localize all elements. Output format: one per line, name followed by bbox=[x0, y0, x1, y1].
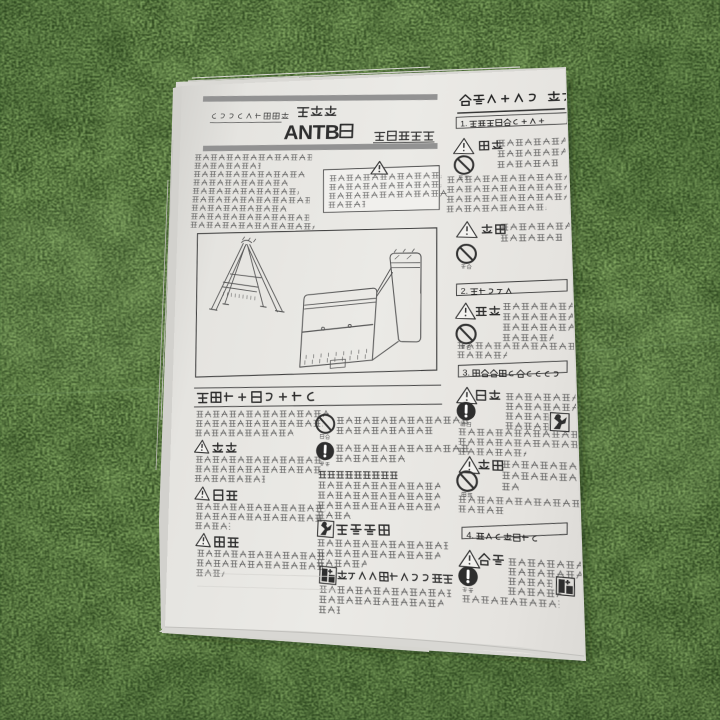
svg-text:ANTB: ANTB bbox=[283, 121, 339, 144]
svg-text:2.: 2. bbox=[461, 286, 469, 296]
svg-text:1.: 1. bbox=[460, 118, 467, 128]
svg-text:3.: 3. bbox=[462, 367, 470, 378]
svg-text:4.: 4. bbox=[466, 529, 474, 541]
